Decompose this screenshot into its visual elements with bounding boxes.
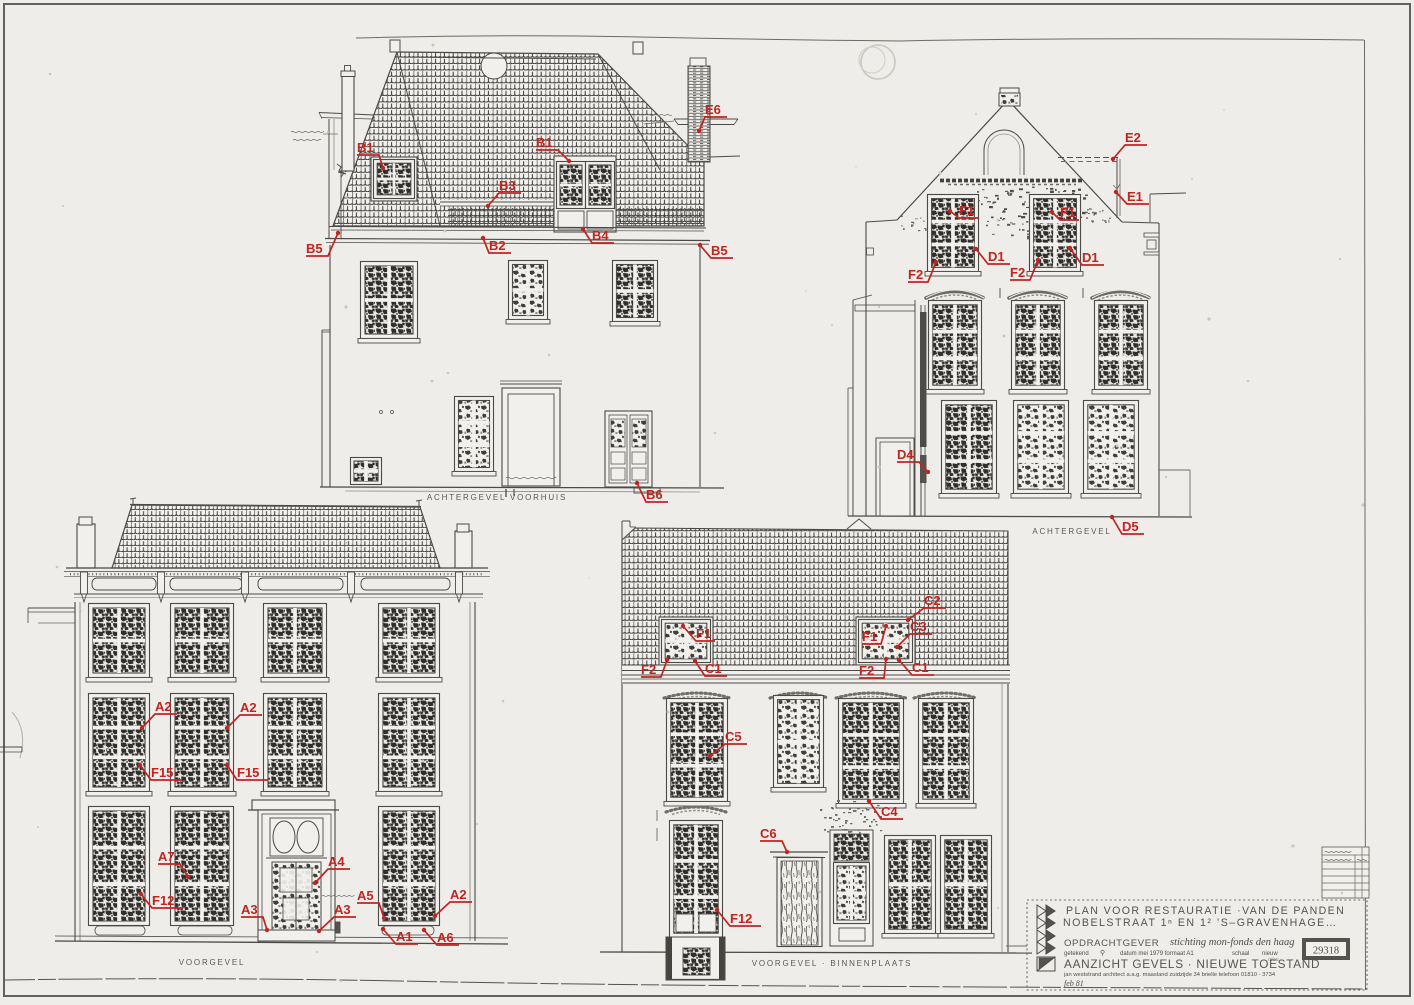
svg-text:B4: B4 [592,228,609,243]
svg-text:C1: C1 [912,660,929,675]
svg-text:A3: A3 [241,902,258,917]
svg-text:F2: F2 [859,663,874,678]
svg-text:ACHTERGEVEL VOORHUIS: ACHTERGEVEL VOORHUIS [427,493,567,502]
svg-text:NOBELSTRAAT 1ⁿ EN 1² ’S–GRAVEN: NOBELSTRAAT 1ⁿ EN 1² ’S–GRAVENHAGE… [1063,917,1338,929]
svg-text:B1: B1 [536,135,553,150]
svg-text:C6: C6 [760,826,777,841]
svg-text:E6: E6 [705,102,721,117]
svg-text:D5: D5 [1122,519,1139,534]
svg-text:stichting mon-fonds den haag: stichting mon-fonds den haag [1170,937,1295,948]
svg-text:F1: F1 [959,203,974,218]
svg-text:B5: B5 [306,241,323,256]
svg-text:F2: F2 [641,662,656,677]
svg-text:⚲: ⚲ [1100,949,1105,957]
svg-text:F1: F1 [862,629,877,644]
svg-text:jan weststrand architect a.a: jan weststrand architect a.a.g. maasland… [1063,972,1276,978]
svg-text:29318: 29318 [1313,946,1339,957]
svg-text:C5: C5 [725,729,742,744]
svg-text:A2: A2 [155,699,172,714]
svg-text:OPDRACHTGEVER: OPDRACHTGEVER [1064,938,1159,949]
svg-text:E2: E2 [1125,130,1141,145]
svg-text:E1: E1 [1127,189,1143,204]
svg-text:D1: D1 [1082,250,1099,265]
svg-text:A2: A2 [450,887,467,902]
svg-text:F15: F15 [237,765,259,780]
svg-text:A4: A4 [328,854,345,869]
svg-text:F1: F1 [1060,205,1075,220]
svg-text:F2: F2 [908,267,923,282]
svg-text:D4: D4 [897,447,914,462]
svg-text:C3: C3 [910,619,927,634]
svg-text:F12: F12 [152,893,174,908]
svg-text:F12: F12 [730,911,752,926]
svg-text:C1: C1 [705,661,722,676]
svg-text:A2: A2 [240,700,257,715]
svg-text:A6: A6 [437,930,454,945]
svg-text:B2: B2 [489,238,506,253]
svg-text:D1: D1 [988,249,1005,264]
svg-text:A3: A3 [334,902,351,917]
svg-text:feb 81: feb 81 [1064,979,1084,988]
svg-text:B5: B5 [711,243,728,258]
svg-text:B6: B6 [646,487,663,502]
svg-text:AANZICHT GEVELS · NIEUWE TOEST: AANZICHT GEVELS · NIEUWE TOESTAND [1064,957,1320,971]
svg-text:A7: A7 [158,849,175,864]
svg-text:B3: B3 [499,178,516,193]
svg-text:PLAN VOOR RESTAURATIE ·VAN DE: PLAN VOOR RESTAURATIE ·VAN DE PANDEN [1066,905,1345,917]
svg-text:F1: F1 [696,626,711,641]
svg-text:F2: F2 [1010,265,1025,280]
svg-text:VOORGEVEL: VOORGEVEL [179,958,245,967]
svg-text:B1: B1 [357,140,374,155]
svg-text:A5: A5 [357,888,374,903]
svg-text:C2: C2 [924,593,941,608]
svg-text:ACHTERGEVEL: ACHTERGEVEL [1032,527,1111,536]
svg-text:C4: C4 [881,804,898,819]
svg-text:A1: A1 [396,929,413,944]
svg-text:F15: F15 [151,765,173,780]
svg-text:VOORGEVEL · BINNENPLAATS: VOORGEVEL · BINNENPLAATS [752,959,913,968]
